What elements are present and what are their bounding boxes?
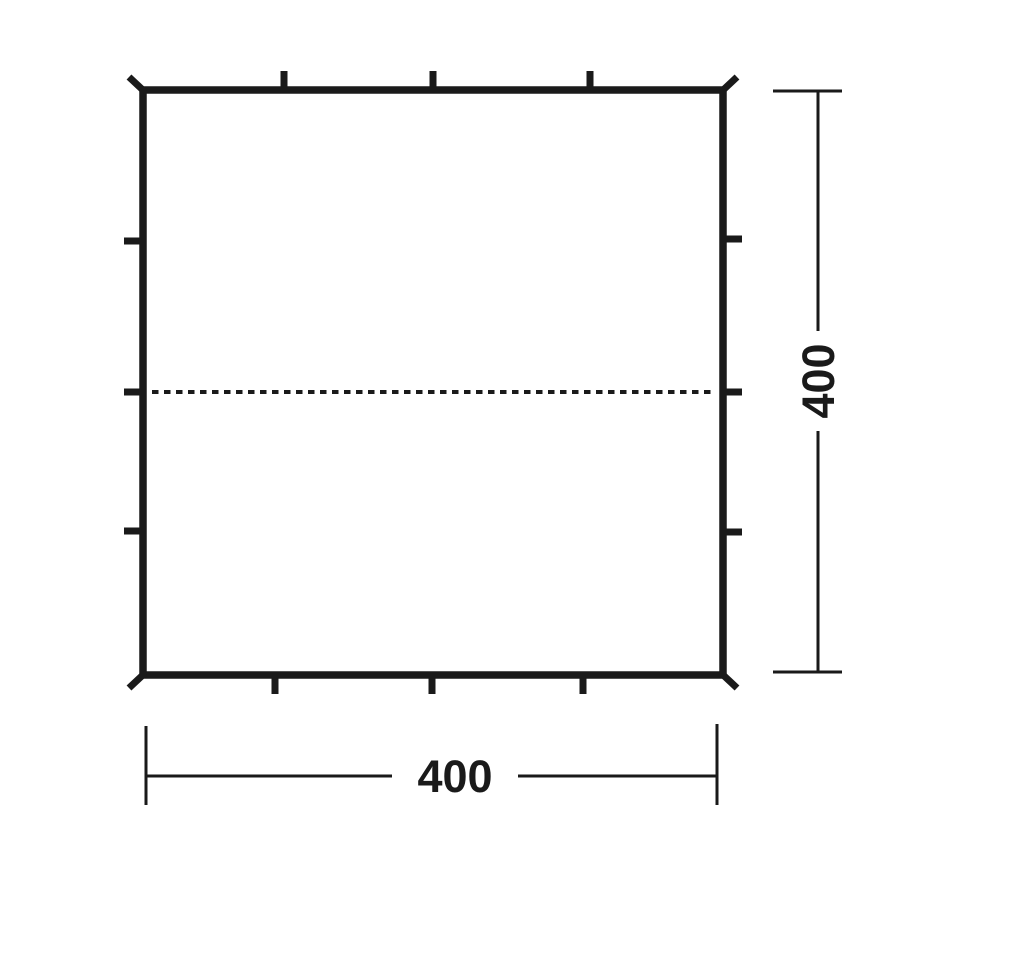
corner-loop-tick-bottom-right: [721, 673, 737, 688]
corner-loop-tick-bottom-left: [129, 673, 145, 688]
width-dimension: 400: [146, 724, 717, 805]
width-dimension-label: 400: [417, 751, 492, 802]
tarp-dimension-drawing: 400 400: [0, 0, 1024, 965]
corner-loop-tick-top-right: [721, 77, 737, 92]
height-dimension: 400: [773, 91, 844, 672]
tarp-drawing-canvas: 400 400: [0, 0, 1024, 965]
tarp-outline: [143, 90, 723, 675]
height-dimension-label: 400: [793, 343, 844, 418]
corner-loop-tick-top-left: [129, 77, 145, 92]
